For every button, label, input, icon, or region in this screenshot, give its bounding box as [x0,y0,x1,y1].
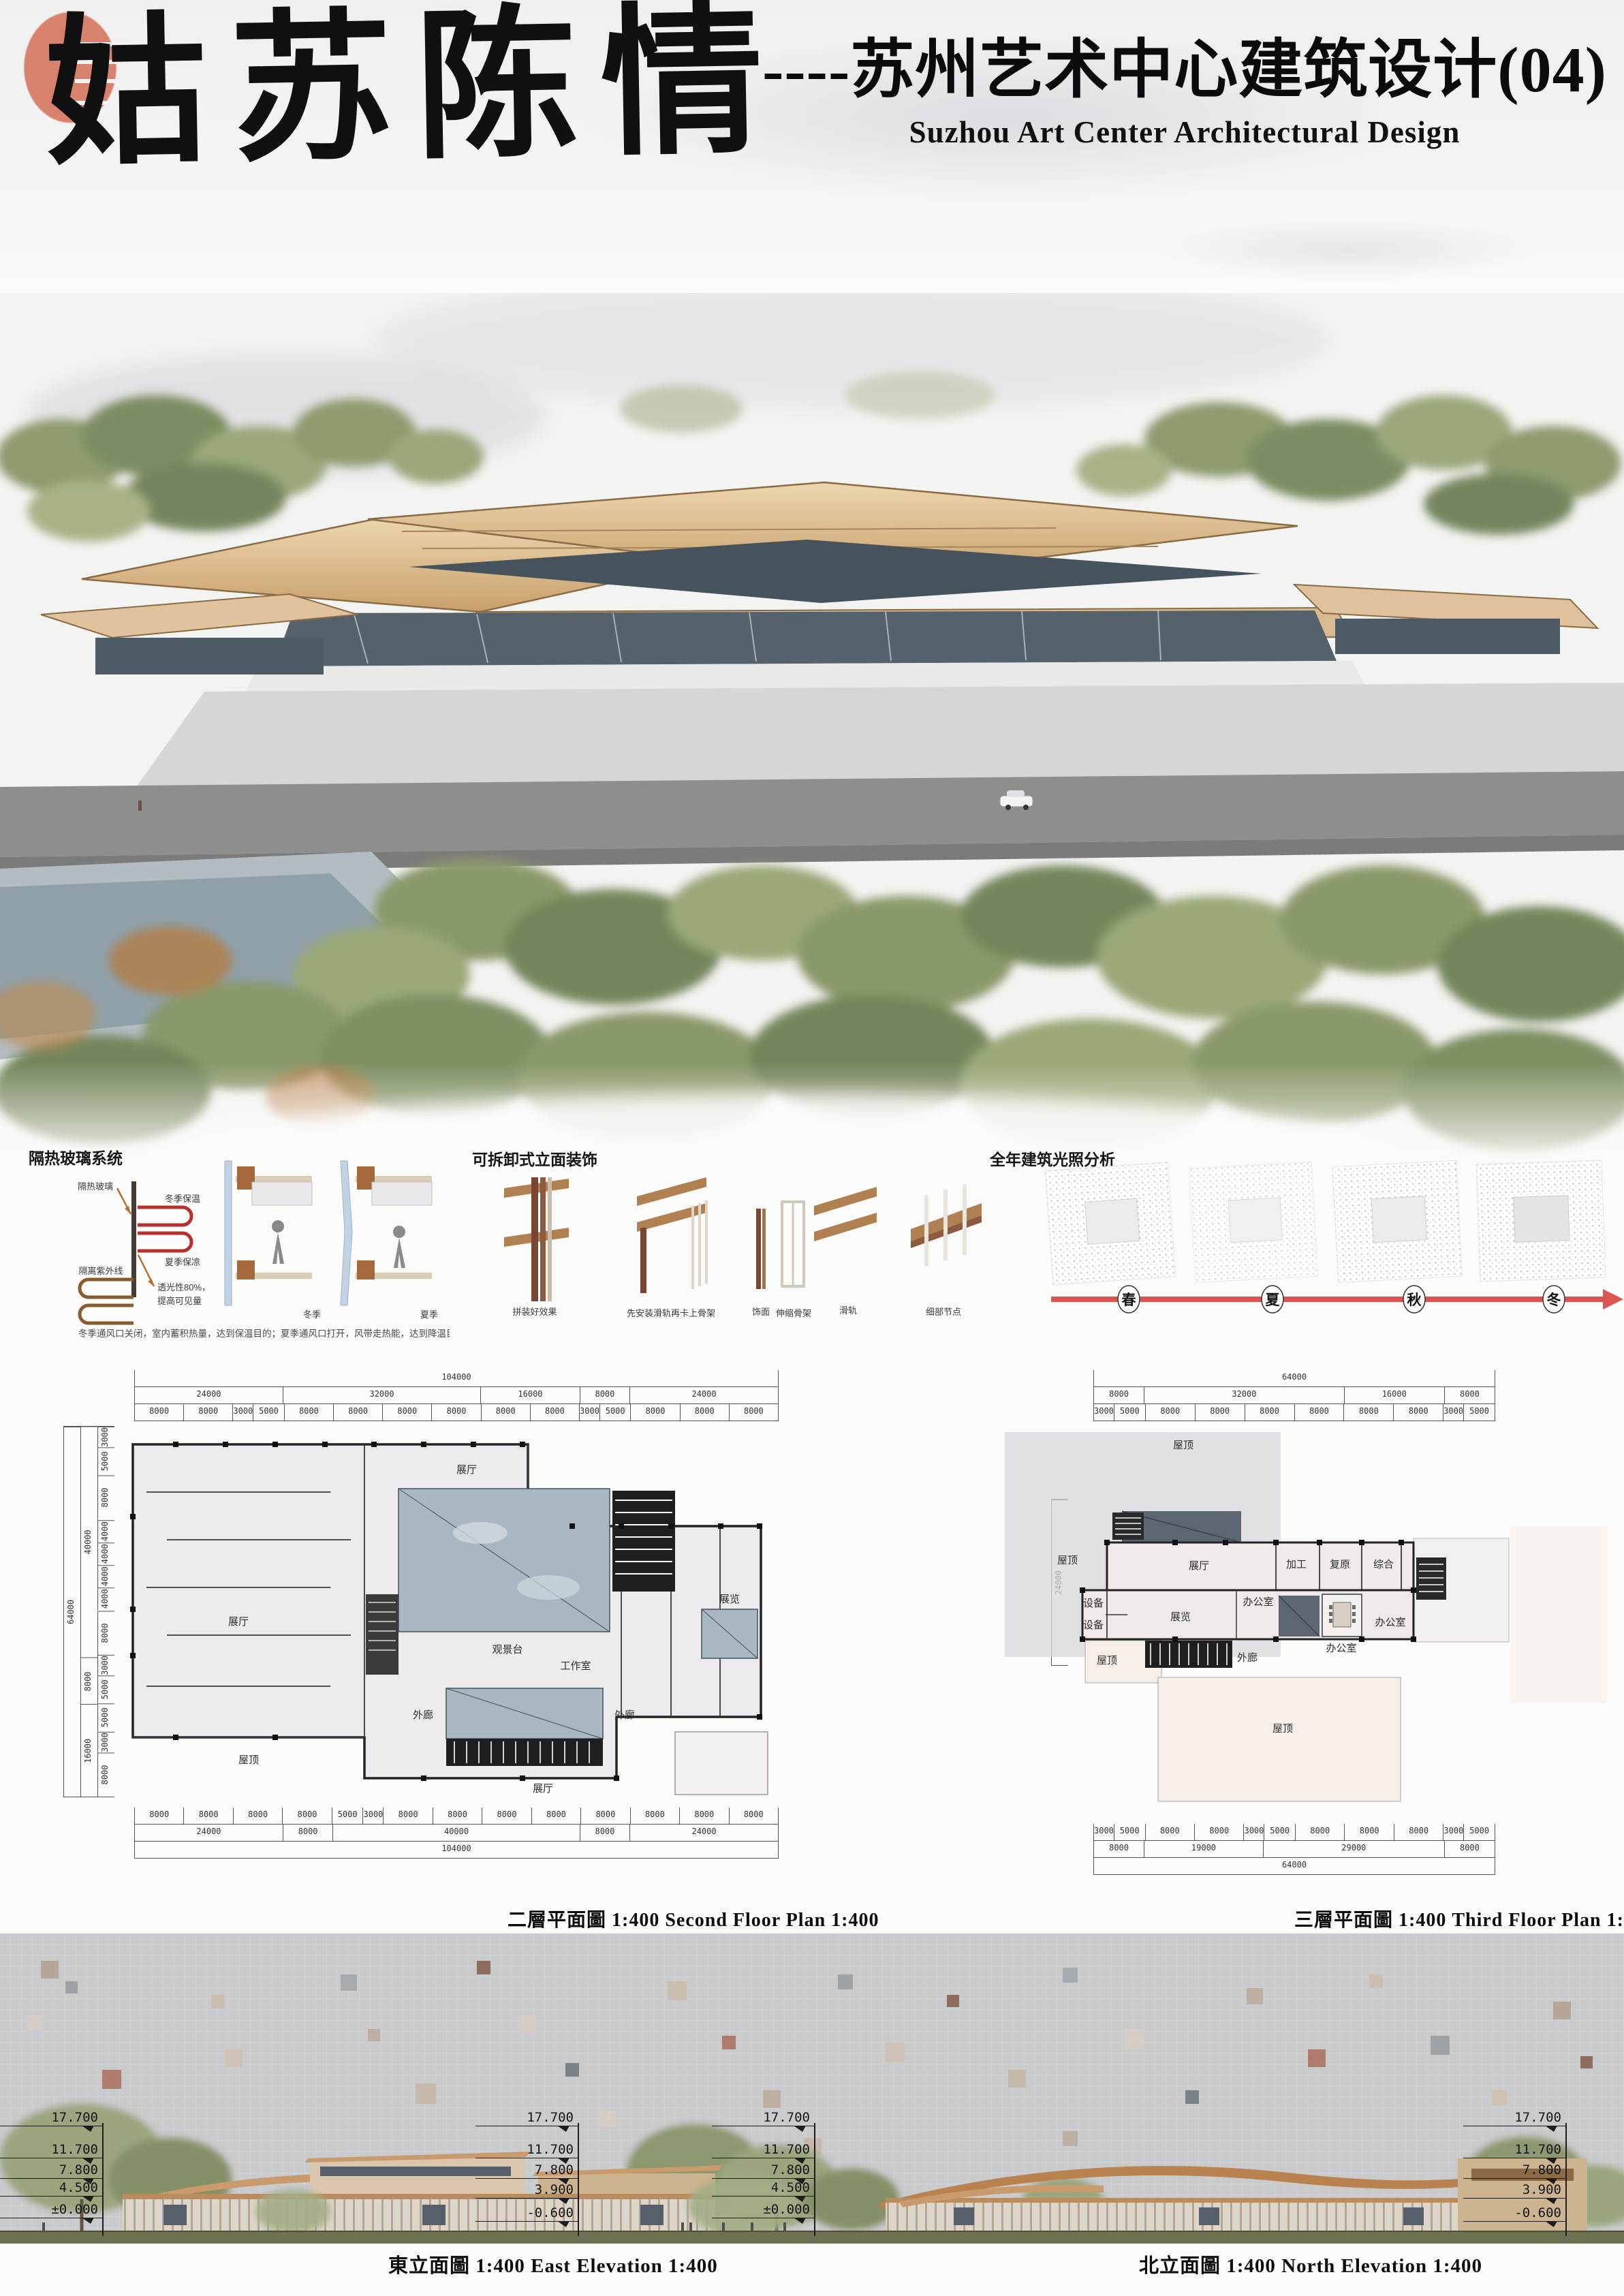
dim-segment: 8000 [183,1404,232,1421]
dim-segment: 8000 [1094,1387,1144,1404]
level-value: -0.600 [1514,2205,1561,2220]
dim-segment: 24000 [135,1825,283,1842]
winter-caption: 冬季 [303,1309,321,1320]
dim-segment: 3000 [362,1808,383,1825]
dim-segment: 8000 [382,1404,431,1421]
level-value: 11.700 [1514,2142,1561,2157]
summer-cool-label: 夏季保凉 [165,1257,200,1267]
plan3-dims-bottom: 3000500080008000300050008000800080003000… [1093,1824,1495,1875]
season-autumn: 秋 [1407,1292,1422,1308]
glass-system-caption: 冬季通风口关闭，室内蓄积热量，达到保温目的；夏季通风口打开，风带走热能，达到降温… [78,1328,450,1339]
facade-label-4: 滑轨 [839,1305,857,1316]
dim-segment: 3000 [579,1404,599,1421]
dim-segment: 40000 [332,1825,580,1842]
dim-segment: 64000 [1094,1858,1495,1875]
room-label: 屋顶 [1097,1655,1117,1666]
level-value: 17.700 [763,2110,810,2125]
pedestrian [138,801,142,811]
room-label: 办公室 [1375,1617,1405,1628]
level-value: 11.700 [51,2142,98,2157]
level-value: 17.700 [527,2110,574,2125]
room-label: 外廊 [413,1709,433,1721]
calligraphy-title: 姑苏陈情 [43,0,787,197]
dim-segment: 8000 [1094,1841,1144,1858]
dim-segment: 8000 [580,1387,629,1404]
dim-segment: 8000 [282,1808,331,1825]
room-label: 屋顶 [1272,1723,1293,1735]
dim-segment: 16000 [80,1704,97,1797]
dim-segment: 8000 [284,1404,333,1421]
dim-segment: 8000 [1393,1404,1443,1421]
room-label: 设备 [1083,1598,1104,1609]
dim-segment: 4000 [97,1587,114,1610]
dim-segment: 8000 [233,1808,282,1825]
glass-system-title: 隔热玻璃系统 [29,1149,123,1167]
dim-segment: 32000 [283,1387,480,1404]
room-label: 屋顶 [238,1754,259,1766]
glass-label: 隔热玻璃 [78,1181,113,1192]
dim-segment: 8000 [680,1404,729,1421]
dim-segment: 3000 [232,1404,253,1421]
shadow-study-winter [1476,1160,1606,1282]
room-label: 展厅 [1189,1560,1209,1572]
dim-segment: 24000 [629,1387,778,1404]
second-floor-plan: 104000 240003200016000800024000 80008000… [58,1366,780,1911]
translucency-label-1: 透光性80%， [157,1282,210,1292]
dim-segment: 3000 [97,1732,114,1752]
shadow-study-summer [1189,1162,1318,1282]
facade-label-5: 细部节点 [926,1307,961,1317]
level-value: 7.800 [59,2162,98,2177]
dim-segment: 5000 [253,1404,284,1421]
dim-segment: 8000 [433,1808,482,1825]
dim-segment: 3000 [1243,1824,1264,1841]
elevation-band: 17.700 11.700 7.800 4.500 ±0.000 17.700 … [0,1934,1624,2244]
dim-segment: 8000 [481,1404,530,1421]
uv-label: 隔离紫外线 [78,1266,123,1276]
dim-segment: 5000 [332,1808,363,1825]
sunlight-diagram: 全年建筑光照分析 春 [984,1146,1624,1330]
sunlight-title: 全年建筑光照分析 [989,1151,1115,1168]
dim-segment: 5000 [97,1675,114,1703]
dim-segment: 8000 [97,1475,114,1519]
project-title-block: ----苏州艺术中心建筑设计(04) Suzhou Art Center Arc… [755,18,1614,150]
dim-segment: 5000 [1264,1824,1295,1841]
room-label: 展厅 [533,1783,553,1795]
room-label: 展厅 [228,1616,249,1628]
room-label: 综合 [1373,1559,1394,1570]
dim-segment: 8000 [679,1808,728,1825]
dim-segment: 8000 [1195,1404,1245,1421]
level-value: ±0.000 [51,2202,98,2217]
plan2-dims-left: 64000 40000800016000 3000500080004000400… [63,1426,114,1797]
dim-segment: 8000 [97,1752,114,1797]
level-value: 17.700 [1514,2110,1561,2125]
dim-segment: 16000 [1344,1387,1444,1404]
plan3-dims-top: 64000 800032000160008000 300050008000800… [1093,1370,1495,1421]
level-value: -0.600 [527,2205,574,2220]
dim-segment: 64000 [1094,1370,1495,1387]
plan3-drawing: 屋顶 屋顶 展厅 加工 复原 综合 设备 设备 展览 办公室 办公室 办公室 外… [1005,1424,1608,1805]
dim-segment: 8000 [531,1808,580,1825]
second-floor-caption: 二層平面圖 1:400 Second Floor Plan 1:400 [507,1905,879,1932]
dim-segment: 8000 [383,1808,432,1825]
dim-segment: 3000 [1443,1824,1463,1841]
dim-segment: 8000 [580,1825,629,1842]
facade-title: 可拆卸式立面装饰 [472,1151,597,1168]
level-value: ±0.000 [763,2202,810,2217]
dim-segment: 8000 [431,1404,480,1421]
room-label: 外廊 [614,1709,635,1721]
dim-segment: 8000 [1444,1841,1495,1858]
dim-segment: 3000 [1443,1404,1463,1421]
dim-segment: 8000 [1394,1824,1443,1841]
facade-label-1: 先安装滑轨再卡上骨架 [627,1308,715,1318]
level-value: 7.800 [535,2162,574,2177]
dim-segment: 24000 [135,1387,283,1404]
level-value: 11.700 [763,2142,810,2157]
dim-segment: 8000 [1145,1404,1195,1421]
level-value: 4.500 [771,2180,810,2195]
level-value: 17.700 [51,2110,98,2125]
elevations-svg [0,1934,1624,2244]
dim-segment: 8000 [729,1404,778,1421]
room-label: 复原 [1330,1558,1350,1570]
room-label: 展览 [719,1594,740,1605]
facade-step-detail [911,1184,982,1266]
presentation-board: 姑苏陈情 ----苏州艺术中心建筑设计(04) Suzhou Art Cente… [0,0,1624,2296]
dim-segment: 8000 [1295,1824,1344,1841]
summer-section: 夏季 [341,1161,438,1320]
dim-segment: 8000 [1444,1387,1495,1404]
dim-segment: 8000 [283,1825,332,1842]
level-value: 7.800 [1522,2162,1561,2177]
project-title-en: Suzhou Art Center Architectural Design [755,114,1614,150]
dim-segment: 5000 [1463,1824,1495,1841]
dim-segment: 8000 [1194,1824,1243,1841]
board-header: 姑苏陈情 ----苏州艺术中心建筑设计(04) Suzhou Art Cente… [0,0,1624,294]
facade-step-rails [637,1177,708,1293]
dim-segment: 16000 [480,1387,580,1404]
facade-step-facing [756,1209,766,1289]
dim-segment: 32000 [1144,1387,1344,1404]
dim-segment: 8000 [135,1404,183,1421]
dim-segment: 8000 [97,1611,114,1655]
facade-step-frame [782,1202,804,1286]
level-value: 4.500 [59,2180,98,2195]
translucency-label-2: 提高可见量 [157,1296,202,1306]
dim-segment: 104000 [135,1370,778,1387]
plan2-drawing: 展厅 展厅 观景台 外廊 外廊 工作室 展览 屋顶 展厅 [126,1424,773,1799]
room-label: 外廊 [1237,1652,1258,1664]
room-label: 屋顶 [1173,1440,1193,1451]
dim-segment: 5000 [1463,1404,1495,1421]
room-label: 加工 [1286,1559,1307,1570]
dim-segment: 8000 [1294,1404,1344,1421]
third-floor-caption: 三層平面圖 1:400 Third Floor Plan 1:400 [1294,1905,1624,1932]
dim-segment: 24000 [629,1825,778,1842]
dim-segment: 40000 [80,1427,97,1658]
dim-segment: 8000 [630,1404,679,1421]
room-label: 办公室 [1243,1596,1273,1608]
level-value: 3.900 [1522,2182,1561,2197]
dim-segment: 8000 [183,1808,232,1825]
dim-segment: 4000 [97,1520,114,1542]
dim-segment: 5000 [97,1447,114,1475]
third-floor-plan: 64000 800032000160008000 300050008000800… [991,1366,1608,1911]
dim-segment: 3000 [97,1427,114,1447]
dim-segment: 104000 [135,1842,778,1859]
room-label: 观景台 [492,1644,522,1656]
dim-segment: 3000 [1094,1824,1114,1841]
dim-segment: 8000 [1343,1404,1393,1421]
winter-section: 冬季 [225,1161,321,1320]
level-value: 7.800 [771,2162,810,2177]
season-summer: 夏 [1266,1292,1281,1308]
dim-segment: 8000 [530,1404,579,1421]
north-elevation-caption: 北立面圖 1:400 North Elevation 1:400 [1139,2250,1482,2278]
facade-step-rail [814,1187,877,1241]
season-winter: 冬 [1547,1292,1561,1308]
room-label: 展厅 [456,1464,477,1476]
facade-step-assembled [504,1177,569,1301]
facade-label-0: 拼装好效果 [512,1307,557,1317]
aerial-rendering [0,293,1624,1172]
dim-segment: 8000 [1245,1404,1294,1421]
dim-segment: 8000 [1145,1824,1194,1841]
summer-caption: 夏季 [420,1309,438,1320]
east-elevation-caption: 東立面圖 1:400 East Elevation 1:400 [388,2250,718,2278]
dim-segment: 8000 [630,1808,679,1825]
facade-label-2: 饰面 [752,1307,770,1317]
dim-segment: 8000 [80,1658,97,1705]
room-label: 办公室 [1326,1643,1356,1654]
level-value: 3.900 [535,2182,574,2197]
plan2-dims-top: 104000 240003200016000800024000 80008000… [134,1370,779,1421]
aerial-rendering-svg [0,293,1624,1172]
glass-system-diagram: 隔热玻璃系统 隔热玻璃 冬季保温 夏季保凉 隔离紫外线 透光性80%， 提高可见… [20,1146,450,1350]
dim-segment: 19000 [1144,1841,1263,1858]
facade-diagram: 可拆卸式立面装饰 [467,1146,984,1330]
dim-segment: 8000 [1344,1824,1393,1841]
dim-segment: 5000 [599,1404,631,1421]
plan2-dims-bottom: 8000800080008000500030008000800080008000… [134,1808,779,1859]
dim-segment: 8000 [580,1808,629,1825]
shadow-study-autumn [1332,1160,1463,1282]
room-label: 工作室 [560,1660,591,1672]
dim-segment: 4000 [97,1542,114,1565]
dim-segment: 5000 [1114,1404,1145,1421]
dim-segment: 5000 [1114,1824,1145,1841]
room-label: 屋顶 [1057,1555,1078,1566]
dim-segment: 8000 [333,1404,382,1421]
dim-segment: 8000 [135,1808,183,1825]
room-label: 展览 [1170,1611,1191,1623]
dim-segment: 4000 [97,1565,114,1587]
winter-warm-label: 冬季保温 [165,1194,200,1204]
dim-segment: 3000 [97,1655,114,1675]
shadow-study-spring [1045,1162,1175,1285]
dim-segment: 5000 [97,1703,114,1731]
season-spring: 春 [1122,1292,1137,1308]
dim-segment: 64000 [63,1427,80,1797]
room-label: 设备 [1083,1619,1104,1631]
dim-segment: 8000 [729,1808,778,1825]
level-value: 11.700 [527,2142,574,2157]
facade-label-3: 伸缩骨架 [776,1308,811,1318]
dim-segment: 3000 [1094,1404,1114,1421]
dim-segment: 29000 [1263,1841,1444,1858]
dim-segment: 8000 [482,1808,531,1825]
project-title-cn: ----苏州艺术中心建筑设计(04) [755,18,1614,110]
